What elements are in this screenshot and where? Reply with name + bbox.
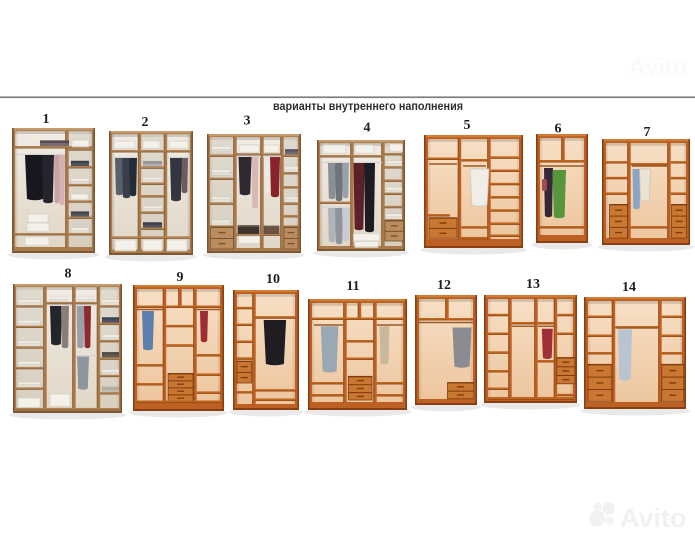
svg-text:5: 5 (464, 118, 471, 133)
svg-text:10: 10 (266, 272, 280, 287)
svg-text:13: 13 (526, 277, 540, 292)
svg-text:8: 8 (65, 267, 72, 282)
svg-text:9: 9 (177, 270, 184, 285)
svg-text:2: 2 (142, 115, 149, 130)
svg-text:4: 4 (364, 121, 371, 136)
svg-text:11: 11 (346, 279, 359, 294)
svg-text:12: 12 (437, 278, 451, 293)
svg-text:варианты внутреннего наполнени: варианты внутреннего наполнения (273, 99, 463, 113)
svg-text:14: 14 (622, 280, 636, 295)
svg-text:Avito: Avito (628, 54, 687, 81)
svg-text:1: 1 (43, 112, 50, 127)
svg-text:7: 7 (644, 125, 651, 140)
svg-text:Avito: Avito (620, 503, 687, 533)
svg-text:3: 3 (244, 114, 251, 129)
svg-text:6: 6 (555, 122, 562, 137)
